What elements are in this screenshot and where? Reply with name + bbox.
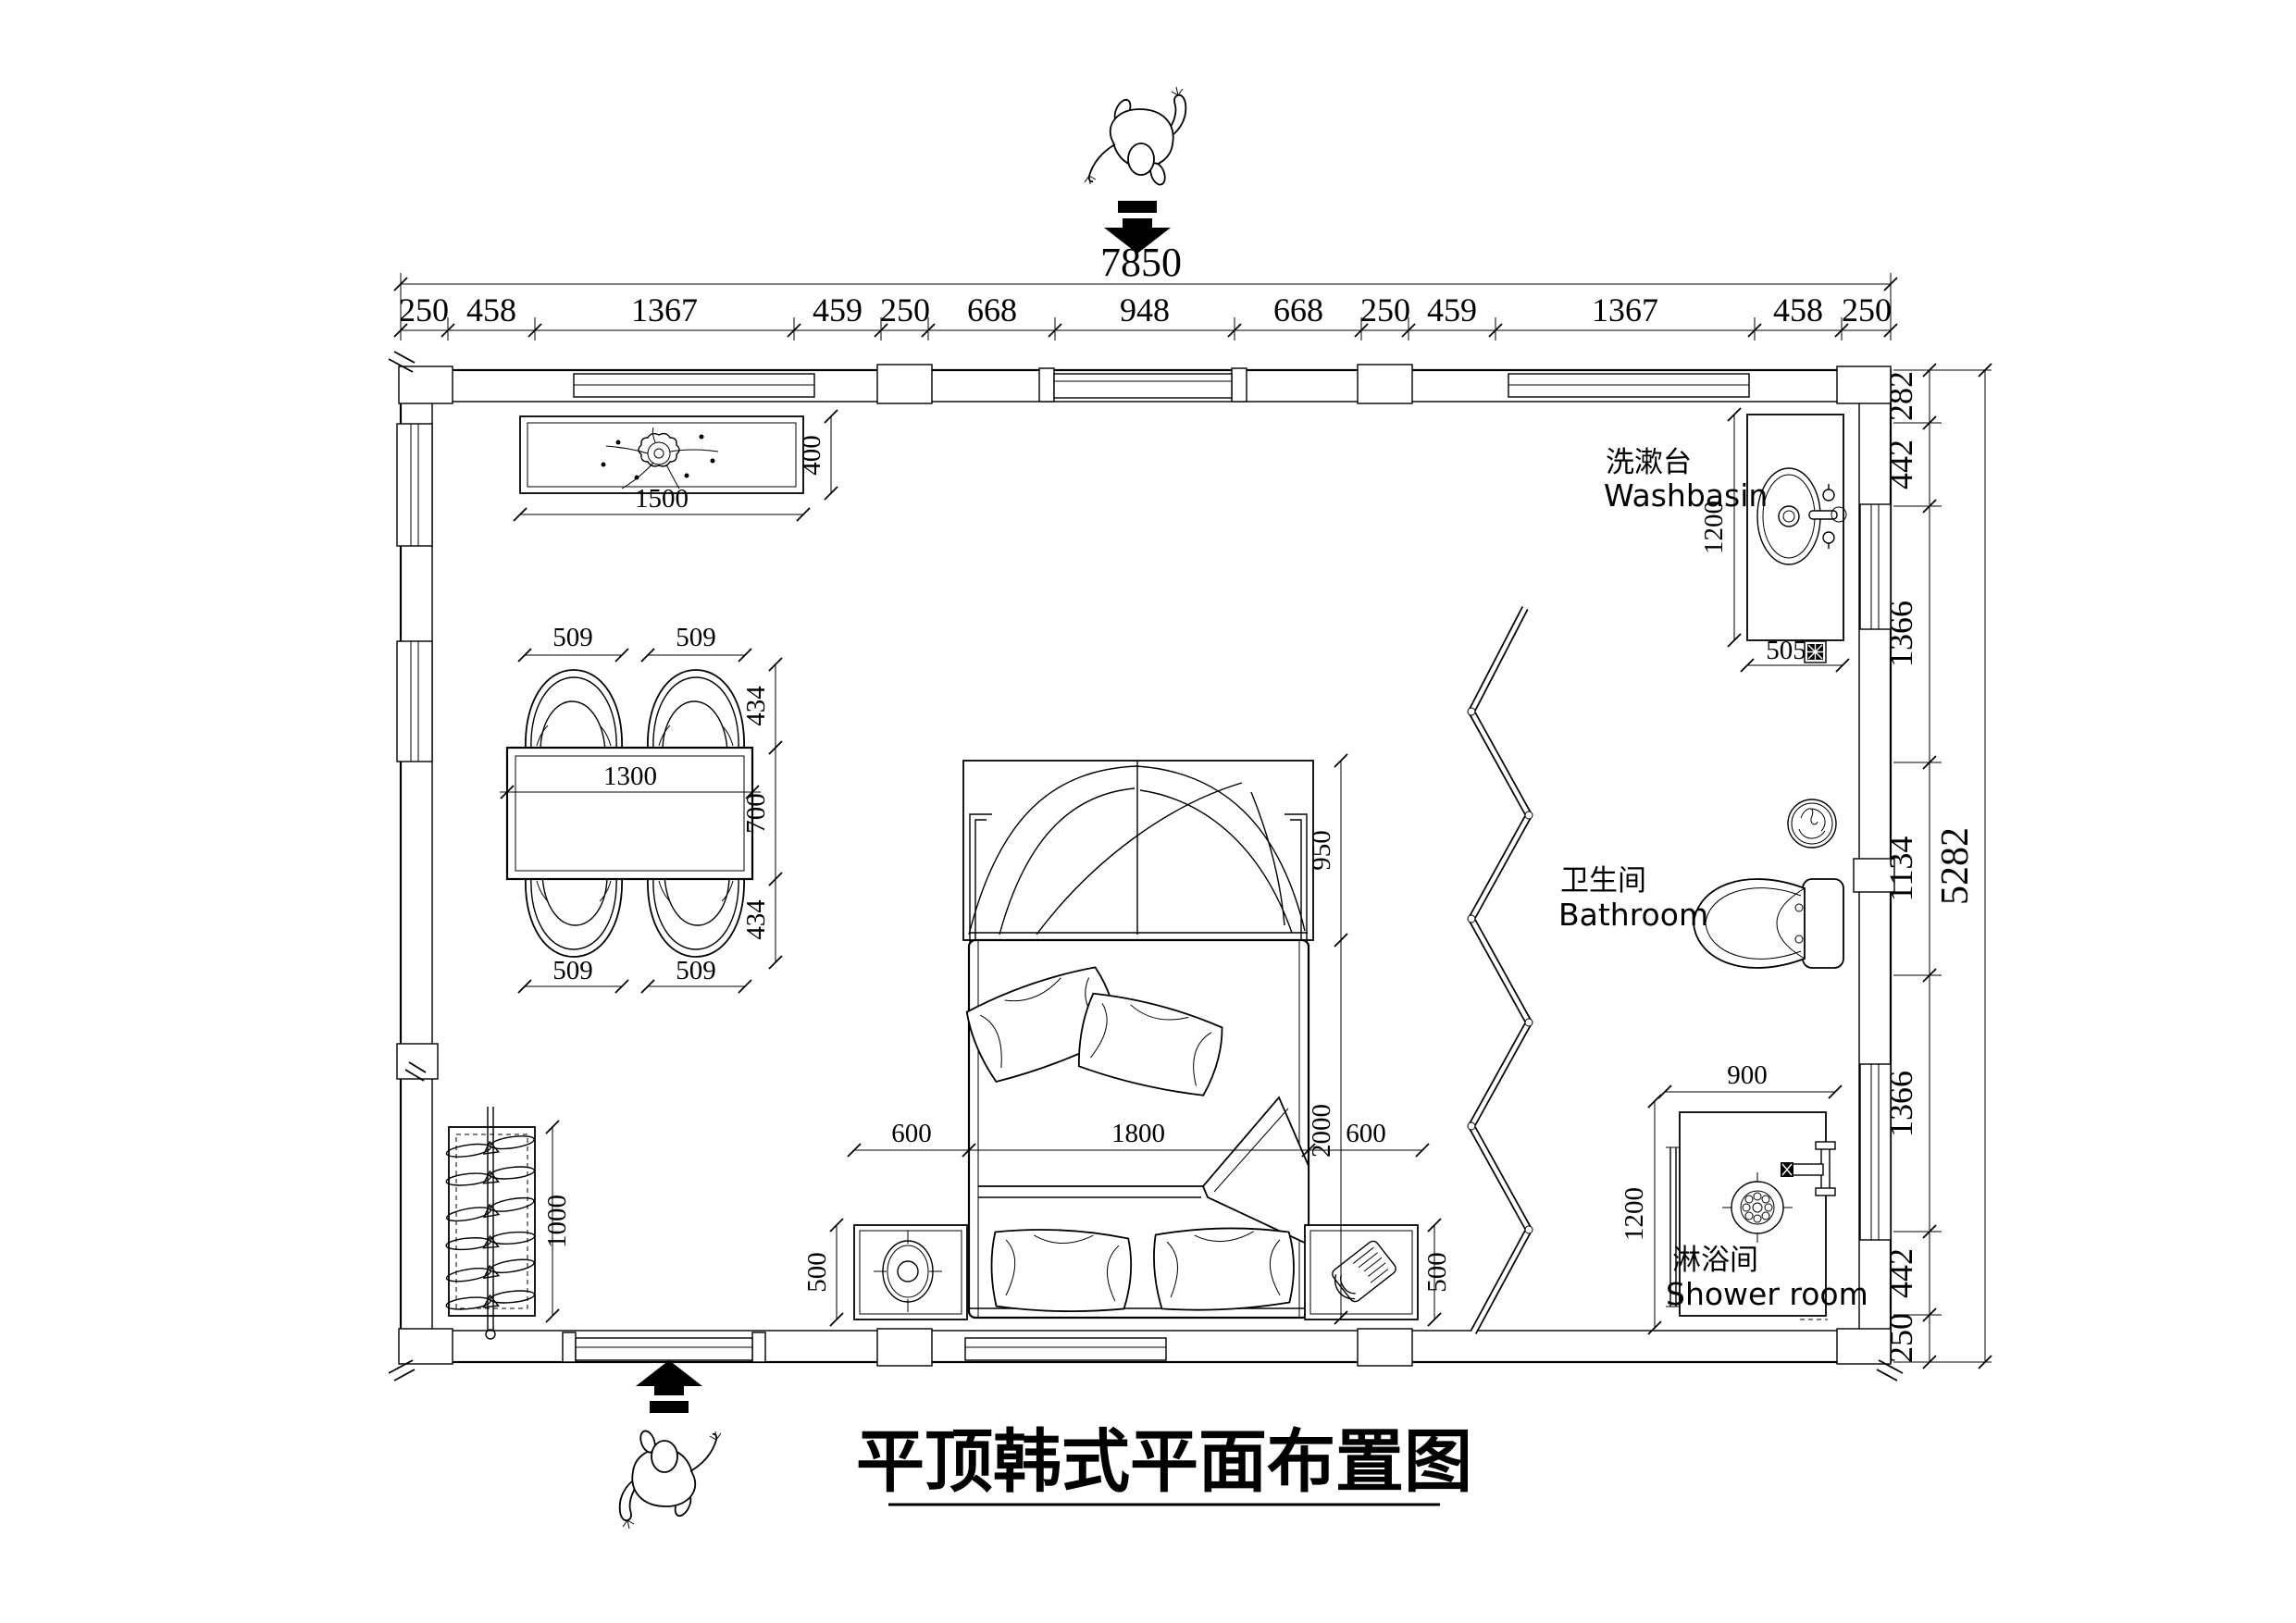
door-jamb xyxy=(1232,368,1247,402)
dim-bed-length: 2000 xyxy=(1307,1104,1336,1158)
washbasin-label-zh: 洗漱台 xyxy=(1606,446,1692,479)
dim-bed-canopy: 950 xyxy=(1307,830,1336,871)
entry-door-panel xyxy=(1054,374,1232,398)
dim-washbasin-w: 505 xyxy=(1766,636,1806,665)
bed-pillow xyxy=(990,1228,1133,1314)
left-wall-windows xyxy=(397,424,432,762)
dim-dining-depth: 434 xyxy=(741,899,771,940)
right-dimension-chain: 5282 282 442 1366 1134 1366 442 250 xyxy=(1882,364,1992,1369)
dim-table-w: 1300 xyxy=(603,762,657,791)
dim-right-seg: 442 xyxy=(1882,1248,1919,1298)
dim-nightstand: 500 xyxy=(1422,1252,1452,1293)
floor-plan-page: 7850 250 458 1367 459 250 668 948 668 25… xyxy=(0,0,2296,1623)
bed-group: 600 1800 600 950 2000 500 500 xyxy=(802,754,1452,1326)
plan-title: 平顶韩式平面布置图 xyxy=(856,1422,1472,1502)
bottom-wall-openings xyxy=(563,1332,1166,1362)
top-wall-openings xyxy=(574,368,1749,402)
dining-chair xyxy=(648,875,744,957)
spiral-drain xyxy=(1788,799,1836,848)
dim-bed-left: 600 xyxy=(891,1119,932,1148)
washbasin-area: 1200 505 洗漱台 Washbasin xyxy=(1604,408,1849,672)
folding-partition xyxy=(1468,608,1533,1332)
dim-shower-d: 1200 xyxy=(1620,1187,1649,1241)
door-jamb xyxy=(1039,368,1054,402)
shower-handle xyxy=(1781,1142,1835,1196)
washbasin-label-en: Washbasin xyxy=(1604,477,1768,514)
dim-right-seg: 282 xyxy=(1882,371,1919,421)
washbasin-counter xyxy=(1747,415,1843,640)
dim-top-seg: 948 xyxy=(1120,291,1170,328)
top-dimension-chain: 7850 250 458 1367 459 250 668 948 668 25… xyxy=(394,240,1897,341)
dim-bed-width: 1800 xyxy=(1111,1119,1165,1148)
bed-canopy xyxy=(963,761,1313,960)
bathroom-label-zh: 卫生间 xyxy=(1560,864,1646,898)
dim-chair: 509 xyxy=(676,956,716,985)
person-figure-top xyxy=(1085,87,1185,187)
dim-top-seg: 668 xyxy=(967,291,1017,328)
dim-chair: 509 xyxy=(676,623,716,652)
dining-chair xyxy=(648,670,744,751)
dining-set: 1300 509 509 509 509 434 700 434 xyxy=(500,623,782,993)
window xyxy=(397,641,432,762)
dining-chair xyxy=(526,875,622,957)
dim-top-seg: 458 xyxy=(466,291,516,328)
entry-arrow-bottom xyxy=(636,1360,702,1413)
dim-dining-depth: 700 xyxy=(741,793,771,834)
dim-top-seg: 668 xyxy=(1273,291,1323,328)
toilet xyxy=(1694,879,1843,968)
bed-pillow xyxy=(1153,1226,1296,1312)
dim-top-seg: 250 xyxy=(880,291,930,328)
bathroom-label-en: Bathroom xyxy=(1558,897,1708,933)
dim-right-seg: 1134 xyxy=(1882,836,1919,902)
shower-room: 900 1200 淋浴间 Shower room xyxy=(1620,1060,1868,1334)
dim-right-seg: 250 xyxy=(1882,1313,1919,1363)
dining-chair xyxy=(526,670,622,751)
plan-title-group: 平顶韩式平面布置图 xyxy=(856,1422,1472,1505)
nightstand-right xyxy=(1305,1225,1418,1319)
dim-top-seg: 250 xyxy=(1360,291,1410,328)
dim-console-d: 400 xyxy=(797,435,826,476)
hangers xyxy=(445,1134,535,1311)
floor-plan-svg: 7850 250 458 1367 459 250 668 948 668 25… xyxy=(0,0,2296,1623)
dim-top-seg: 459 xyxy=(1427,291,1477,328)
nightstand-left xyxy=(854,1225,967,1319)
dim-top-seg: 458 xyxy=(1773,291,1823,328)
dim-right-total: 5282 xyxy=(1934,827,1977,905)
dim-chair: 509 xyxy=(552,623,593,652)
dim-top-seg: 250 xyxy=(399,291,449,328)
floor-drain xyxy=(1805,641,1826,663)
entry-door-panel xyxy=(576,1338,752,1360)
shower-label-en: Shower room xyxy=(1666,1276,1868,1312)
shower-label-zh: 淋浴间 xyxy=(1672,1244,1758,1277)
clothes-rack: 1000 xyxy=(445,1107,572,1339)
window xyxy=(397,424,432,546)
dim-nightstand: 500 xyxy=(802,1252,832,1293)
person-figure-bottom xyxy=(620,1429,721,1529)
dim-rack-h: 1000 xyxy=(542,1195,572,1248)
door-jamb xyxy=(563,1332,576,1362)
dim-top-seg: 250 xyxy=(1842,291,1892,328)
console-table: 1500 400 xyxy=(514,410,838,521)
dim-chair: 509 xyxy=(552,956,593,985)
dim-right-seg: 1366 xyxy=(1882,1071,1919,1137)
dim-right-seg: 1366 xyxy=(1882,601,1919,667)
bathroom-area: 卫生间 Bathroom xyxy=(1558,799,1843,968)
shower-head xyxy=(1722,1172,1793,1243)
dim-top-seg: 1367 xyxy=(1592,291,1658,328)
dim-bed-right: 600 xyxy=(1346,1119,1386,1148)
dim-top-seg: 1367 xyxy=(631,291,698,328)
dim-dining-depth: 434 xyxy=(741,686,771,726)
dim-right-seg: 442 xyxy=(1882,440,1919,489)
dim-shower-w: 900 xyxy=(1727,1060,1768,1090)
dim-console-w: 1500 xyxy=(635,484,689,514)
door-jamb xyxy=(752,1332,765,1362)
window xyxy=(965,1338,1166,1360)
dim-top-seg: 459 xyxy=(813,291,863,328)
